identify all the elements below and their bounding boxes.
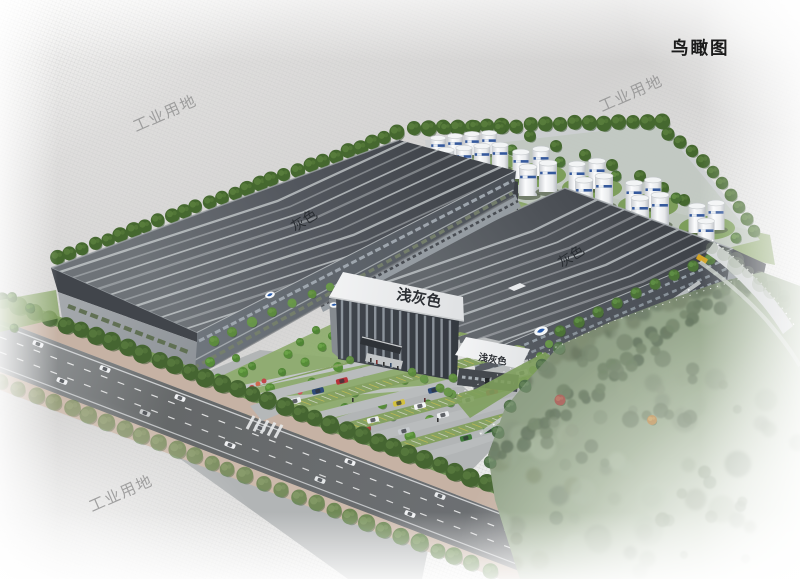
svg-text:鸟瞰图: 鸟瞰图 — [671, 38, 730, 58]
